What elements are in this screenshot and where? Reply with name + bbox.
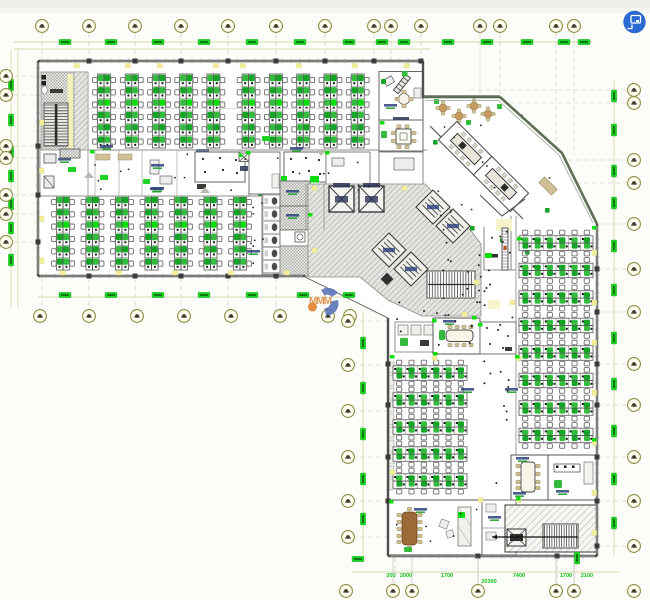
svg-text:1700: 1700	[441, 573, 453, 579]
svg-text:MMM: MMM	[309, 296, 332, 307]
svg-text:2000: 2000	[400, 573, 412, 579]
svg-text:300: 300	[386, 573, 395, 579]
svg-text:7400: 7400	[513, 573, 525, 579]
svg-text:2100: 2100	[581, 573, 593, 579]
svg-text:20300: 20300	[481, 579, 496, 585]
svg-text:1700: 1700	[560, 573, 572, 579]
